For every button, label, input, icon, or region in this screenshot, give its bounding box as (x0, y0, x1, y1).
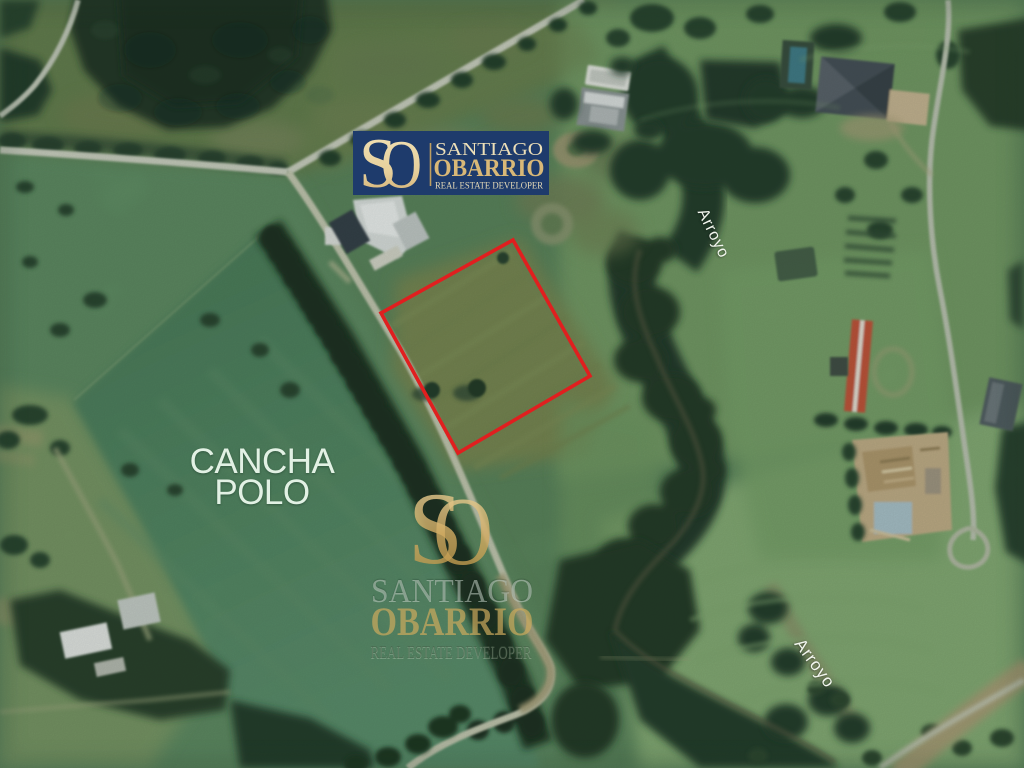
svg-text:OBARRIO: OBARRIO (371, 599, 534, 644)
svg-text:REAL ESTATE DEVELOPER: REAL ESTATE DEVELOPER (371, 642, 532, 662)
svg-text:OBARRIO: OBARRIO (434, 155, 545, 182)
svg-text:REAL ESTATE DEVELOPER: REAL ESTATE DEVELOPER (435, 182, 544, 192)
svg-text:O: O (433, 478, 493, 585)
svg-text:O: O (381, 131, 422, 195)
